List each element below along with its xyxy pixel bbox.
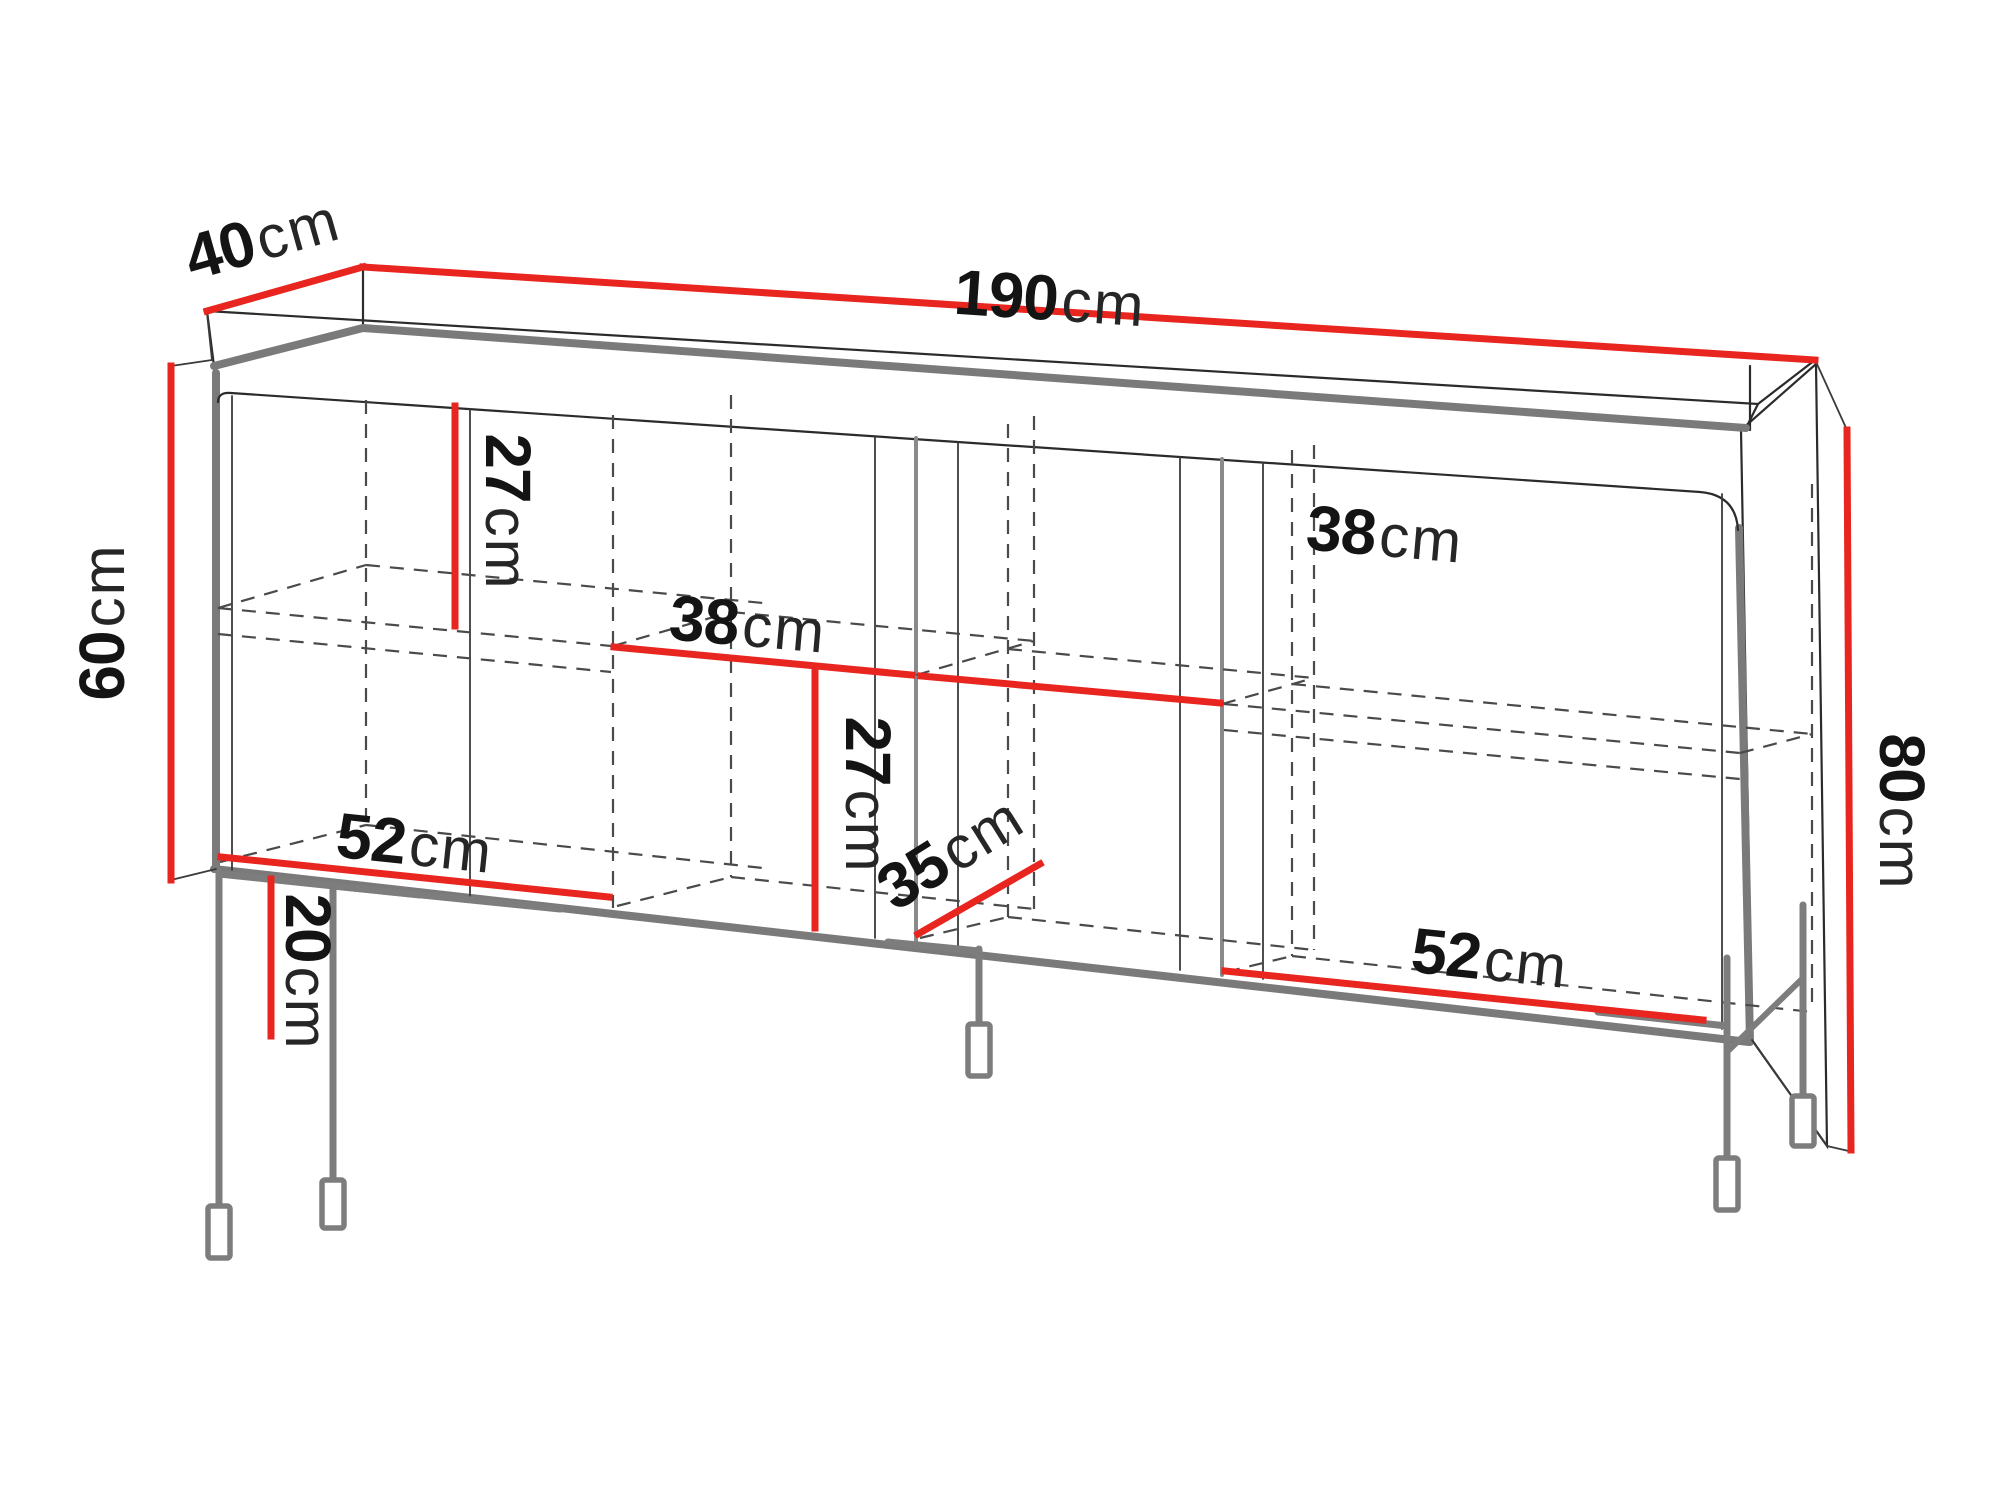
label-body-height: 60cm [66,543,138,700]
label-upper-compartment-height: 27cm [472,433,544,590]
label-total-width: 190cm [952,256,1148,341]
label-leg-height: 20cm [272,893,344,1050]
label-total-height: 80cm [1866,733,1938,890]
dim-line-total-height-80 [1847,430,1851,1150]
sideboard-dimension-drawing: 40cm 190cm 60cm 80cm 27cm 27cm 38cm 38cm… [0,0,2000,1500]
diagram-canvas: 40cm 190cm 60cm 80cm 27cm 27cm 38cm 38cm… [0,0,2000,1500]
cabinet-body [207,267,1827,1146]
leg-back-left [322,885,560,1228]
leg-middle [888,942,990,1076]
